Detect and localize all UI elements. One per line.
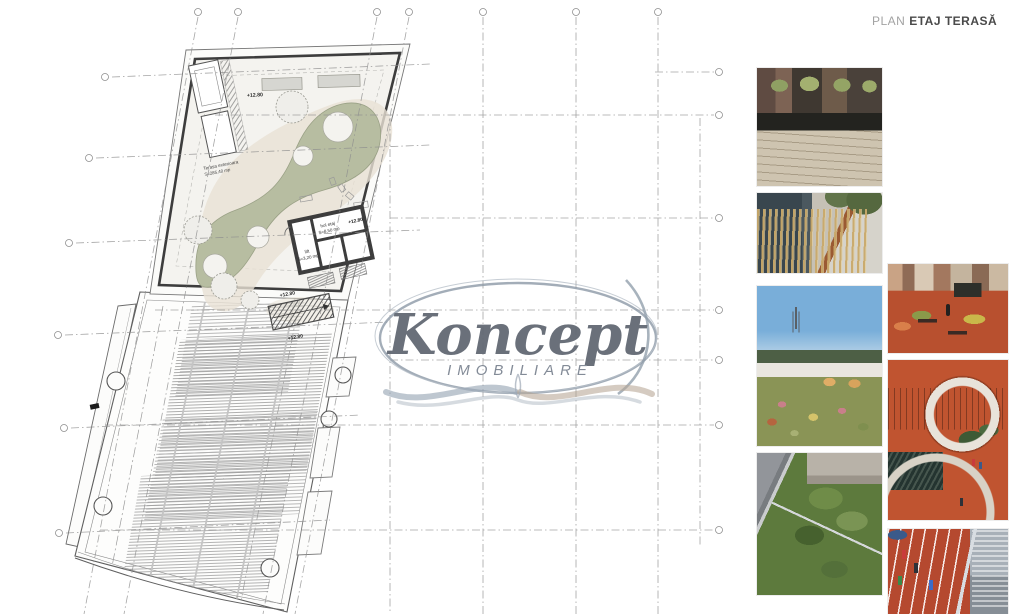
rooftop-vent (262, 77, 302, 90)
photo-running-track (888, 529, 1008, 614)
skylight-circle (94, 497, 112, 515)
tree-canopy (211, 273, 237, 299)
runner-figure (929, 580, 933, 590)
skylight-circle (335, 367, 351, 383)
elevation-mark: +12.80 (247, 92, 263, 99)
tree-canopy (276, 91, 308, 123)
photo-red-terrace (888, 264, 1008, 353)
radio-tower (795, 307, 797, 329)
rooftop-vent (318, 74, 360, 87)
watermark-brand: Koncept (386, 302, 648, 368)
skylight-circle (261, 559, 279, 577)
sheet-title: PLAN ETAJ TERASĂ (872, 14, 997, 28)
watermark-subtitle: IMOBILIARE (447, 362, 593, 379)
lower-roof-block (66, 292, 356, 612)
person-figure (960, 498, 963, 506)
sheet-title-prefix: PLAN (872, 14, 905, 28)
person-figure (979, 462, 982, 469)
person-figure (972, 459, 975, 466)
tree-canopy (241, 291, 259, 309)
skylight-circle (107, 372, 125, 390)
agency-watermark: Koncept IMOBILIARE (368, 262, 668, 422)
photo-green-roof-edge (757, 453, 882, 595)
photo-wildflower-roof (757, 286, 882, 446)
photo-roof-deck-planters (757, 68, 882, 186)
sheet-title-name: ETAJ TERASĂ (909, 14, 997, 28)
photo-curved-ramp (888, 360, 1008, 520)
runner-figure (898, 576, 902, 585)
runner-figure (902, 550, 906, 559)
tree-canopy (184, 216, 212, 244)
photo-grasses-corten (757, 193, 882, 273)
person-figure (946, 304, 950, 316)
sheet-canvas: hol etaj S=8,50 mp lift S=3,20 mp +12.80… (0, 0, 1024, 614)
runner-figure (914, 563, 918, 573)
